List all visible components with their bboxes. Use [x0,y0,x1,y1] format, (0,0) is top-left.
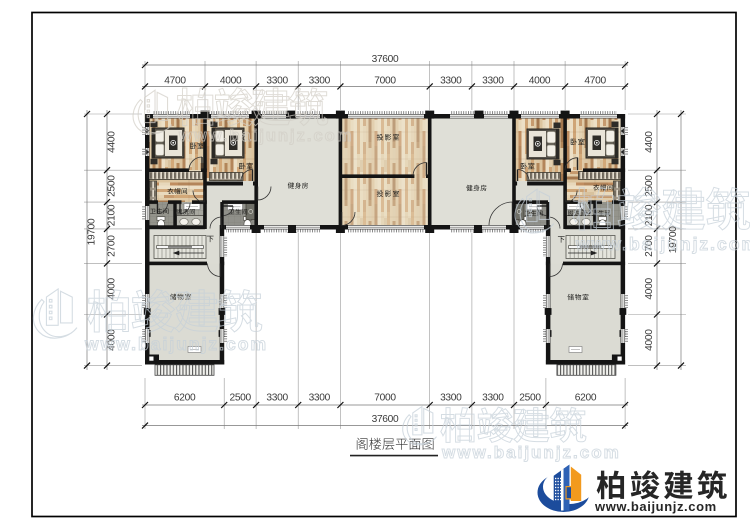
svg-text:3300: 3300 [309,393,331,404]
svg-text:2500: 2500 [519,393,541,404]
svg-text:4000: 4000 [644,278,655,300]
svg-text:3300: 3300 [482,393,504,404]
svg-text:4400: 4400 [107,131,118,153]
svg-text:7000: 7000 [374,393,396,404]
svg-text:2100: 2100 [107,204,118,226]
svg-text:4400: 4400 [644,131,655,153]
svg-text:www.baijunjz.com: www.baijunjz.com [575,234,750,254]
svg-text:7000: 7000 [374,75,396,86]
svg-text:www.baijunjz.com: www.baijunjz.com [441,443,621,462]
svg-text:6200: 6200 [174,393,196,404]
svg-text:3300: 3300 [266,393,288,404]
svg-text:37600: 37600 [372,414,399,425]
svg-text:3300: 3300 [309,75,331,86]
svg-text:3300: 3300 [440,393,462,404]
svg-text:4000: 4000 [220,75,242,86]
svg-text:4700: 4700 [164,75,186,86]
svg-text:3300: 3300 [440,75,462,86]
svg-text:19700: 19700 [87,218,98,245]
svg-text:www.baijunjz.com: www.baijunjz.com [594,499,717,514]
svg-text:2700: 2700 [107,235,118,257]
svg-text:www.baijunjz.com: www.baijunjz.com [178,127,353,145]
svg-text:4000: 4000 [107,278,118,300]
svg-text:2500: 2500 [107,175,118,197]
svg-text:3300: 3300 [482,75,504,86]
svg-text:3300: 3300 [266,75,288,86]
svg-text:6200: 6200 [575,393,597,404]
svg-text:4000: 4000 [529,75,551,86]
svg-text:2500: 2500 [229,393,251,404]
svg-text:www.baijunjz.com: www.baijunjz.com [84,334,268,354]
svg-text:4000: 4000 [644,329,655,351]
svg-text:4700: 4700 [584,75,606,86]
svg-text:37600: 37600 [372,54,399,65]
